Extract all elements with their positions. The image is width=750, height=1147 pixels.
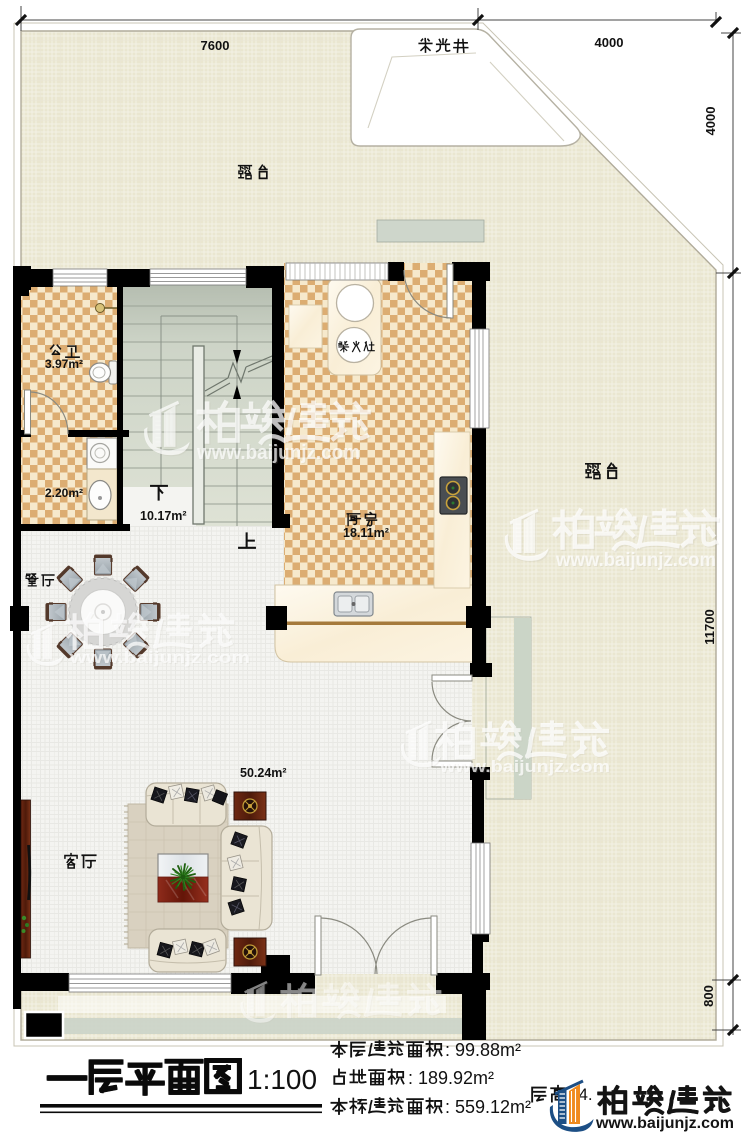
svg-text:50.24m²: 50.24m²	[240, 766, 287, 780]
svg-text:7600: 7600	[201, 38, 230, 53]
svg-text:www.baijunjz.com: www.baijunjz.com	[595, 1115, 734, 1132]
svg-text:www.baijunjz.com: www.baijunjz.com	[555, 550, 716, 571]
svg-text:www.baijunjz.com: www.baijunjz.com	[196, 442, 360, 464]
svg-text:: 99.88m²: : 99.88m²	[445, 1040, 521, 1060]
svg-text:11700: 11700	[702, 609, 717, 644]
svg-text:2.20m²: 2.20m²	[45, 486, 83, 500]
svg-text:4000: 4000	[595, 35, 624, 50]
svg-text:1:100: 1:100	[247, 1064, 317, 1095]
svg-text:10.17m²: 10.17m²	[140, 509, 187, 523]
svg-text:: 189.92m²: : 189.92m²	[408, 1068, 494, 1088]
svg-text:18.11m²: 18.11m²	[343, 526, 389, 540]
svg-text:www.baijunjz.com: www.baijunjz.com	[439, 757, 610, 776]
svg-text:www.baijunjz.com: www.baijunjz.com	[69, 648, 250, 667]
svg-text:800: 800	[701, 985, 716, 1007]
svg-text:3.97m²: 3.97m²	[45, 357, 83, 371]
svg-text:: 559.12m²: : 559.12m²	[445, 1097, 531, 1117]
svg-text:4000: 4000	[703, 107, 718, 136]
